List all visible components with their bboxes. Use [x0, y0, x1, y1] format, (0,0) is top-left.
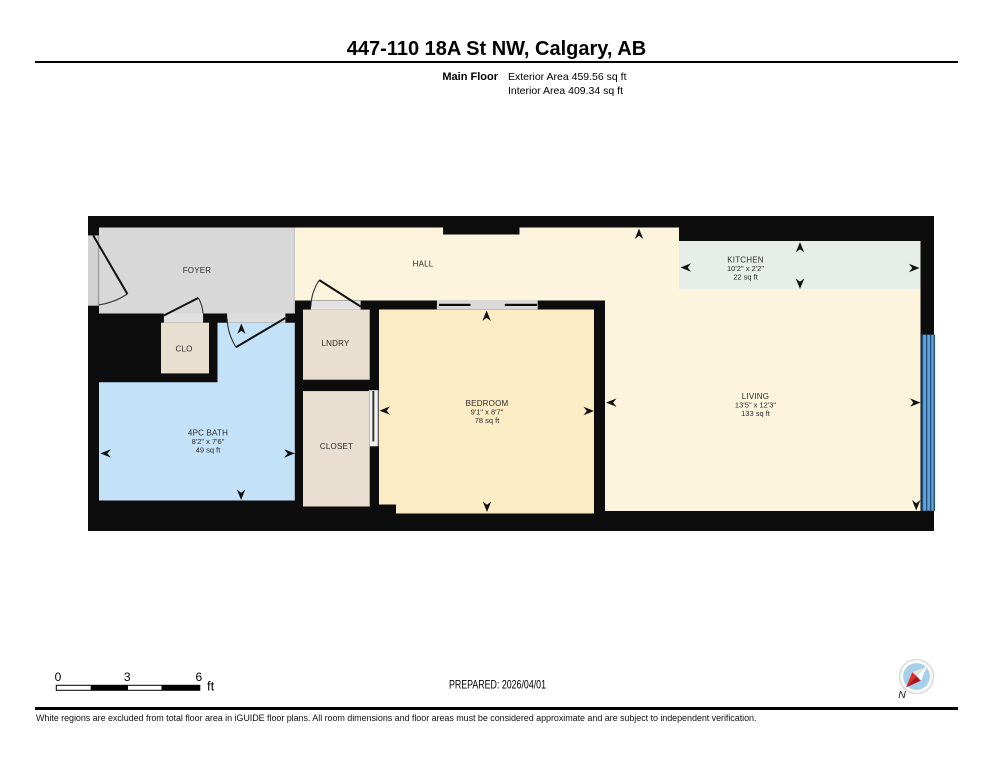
svg-text:133 sq ft: 133 sq ft [741, 409, 771, 418]
svg-text:8'2" x 7'6": 8'2" x 7'6" [192, 437, 225, 446]
svg-text:PREPARED: 2026/04/01: PREPARED: 2026/04/01 [449, 678, 546, 692]
svg-text:LNDRY: LNDRY [322, 339, 350, 348]
svg-text:6: 6 [195, 670, 202, 684]
svg-text:N: N [898, 689, 906, 701]
svg-text:HALL: HALL [413, 260, 434, 269]
svg-text:4PC BATH: 4PC BATH [188, 428, 228, 437]
svg-text:22 sq ft: 22 sq ft [733, 272, 759, 281]
svg-text:0: 0 [55, 670, 62, 684]
svg-text:78 sq ft: 78 sq ft [475, 416, 501, 425]
svg-text:ft: ft [207, 679, 215, 694]
svg-text:49 sq ft: 49 sq ft [196, 446, 222, 455]
svg-text:FOYER: FOYER [183, 266, 212, 275]
svg-text:CLOSET: CLOSET [320, 442, 353, 451]
svg-text:CLO: CLO [175, 344, 192, 353]
svg-text:3: 3 [124, 670, 131, 684]
